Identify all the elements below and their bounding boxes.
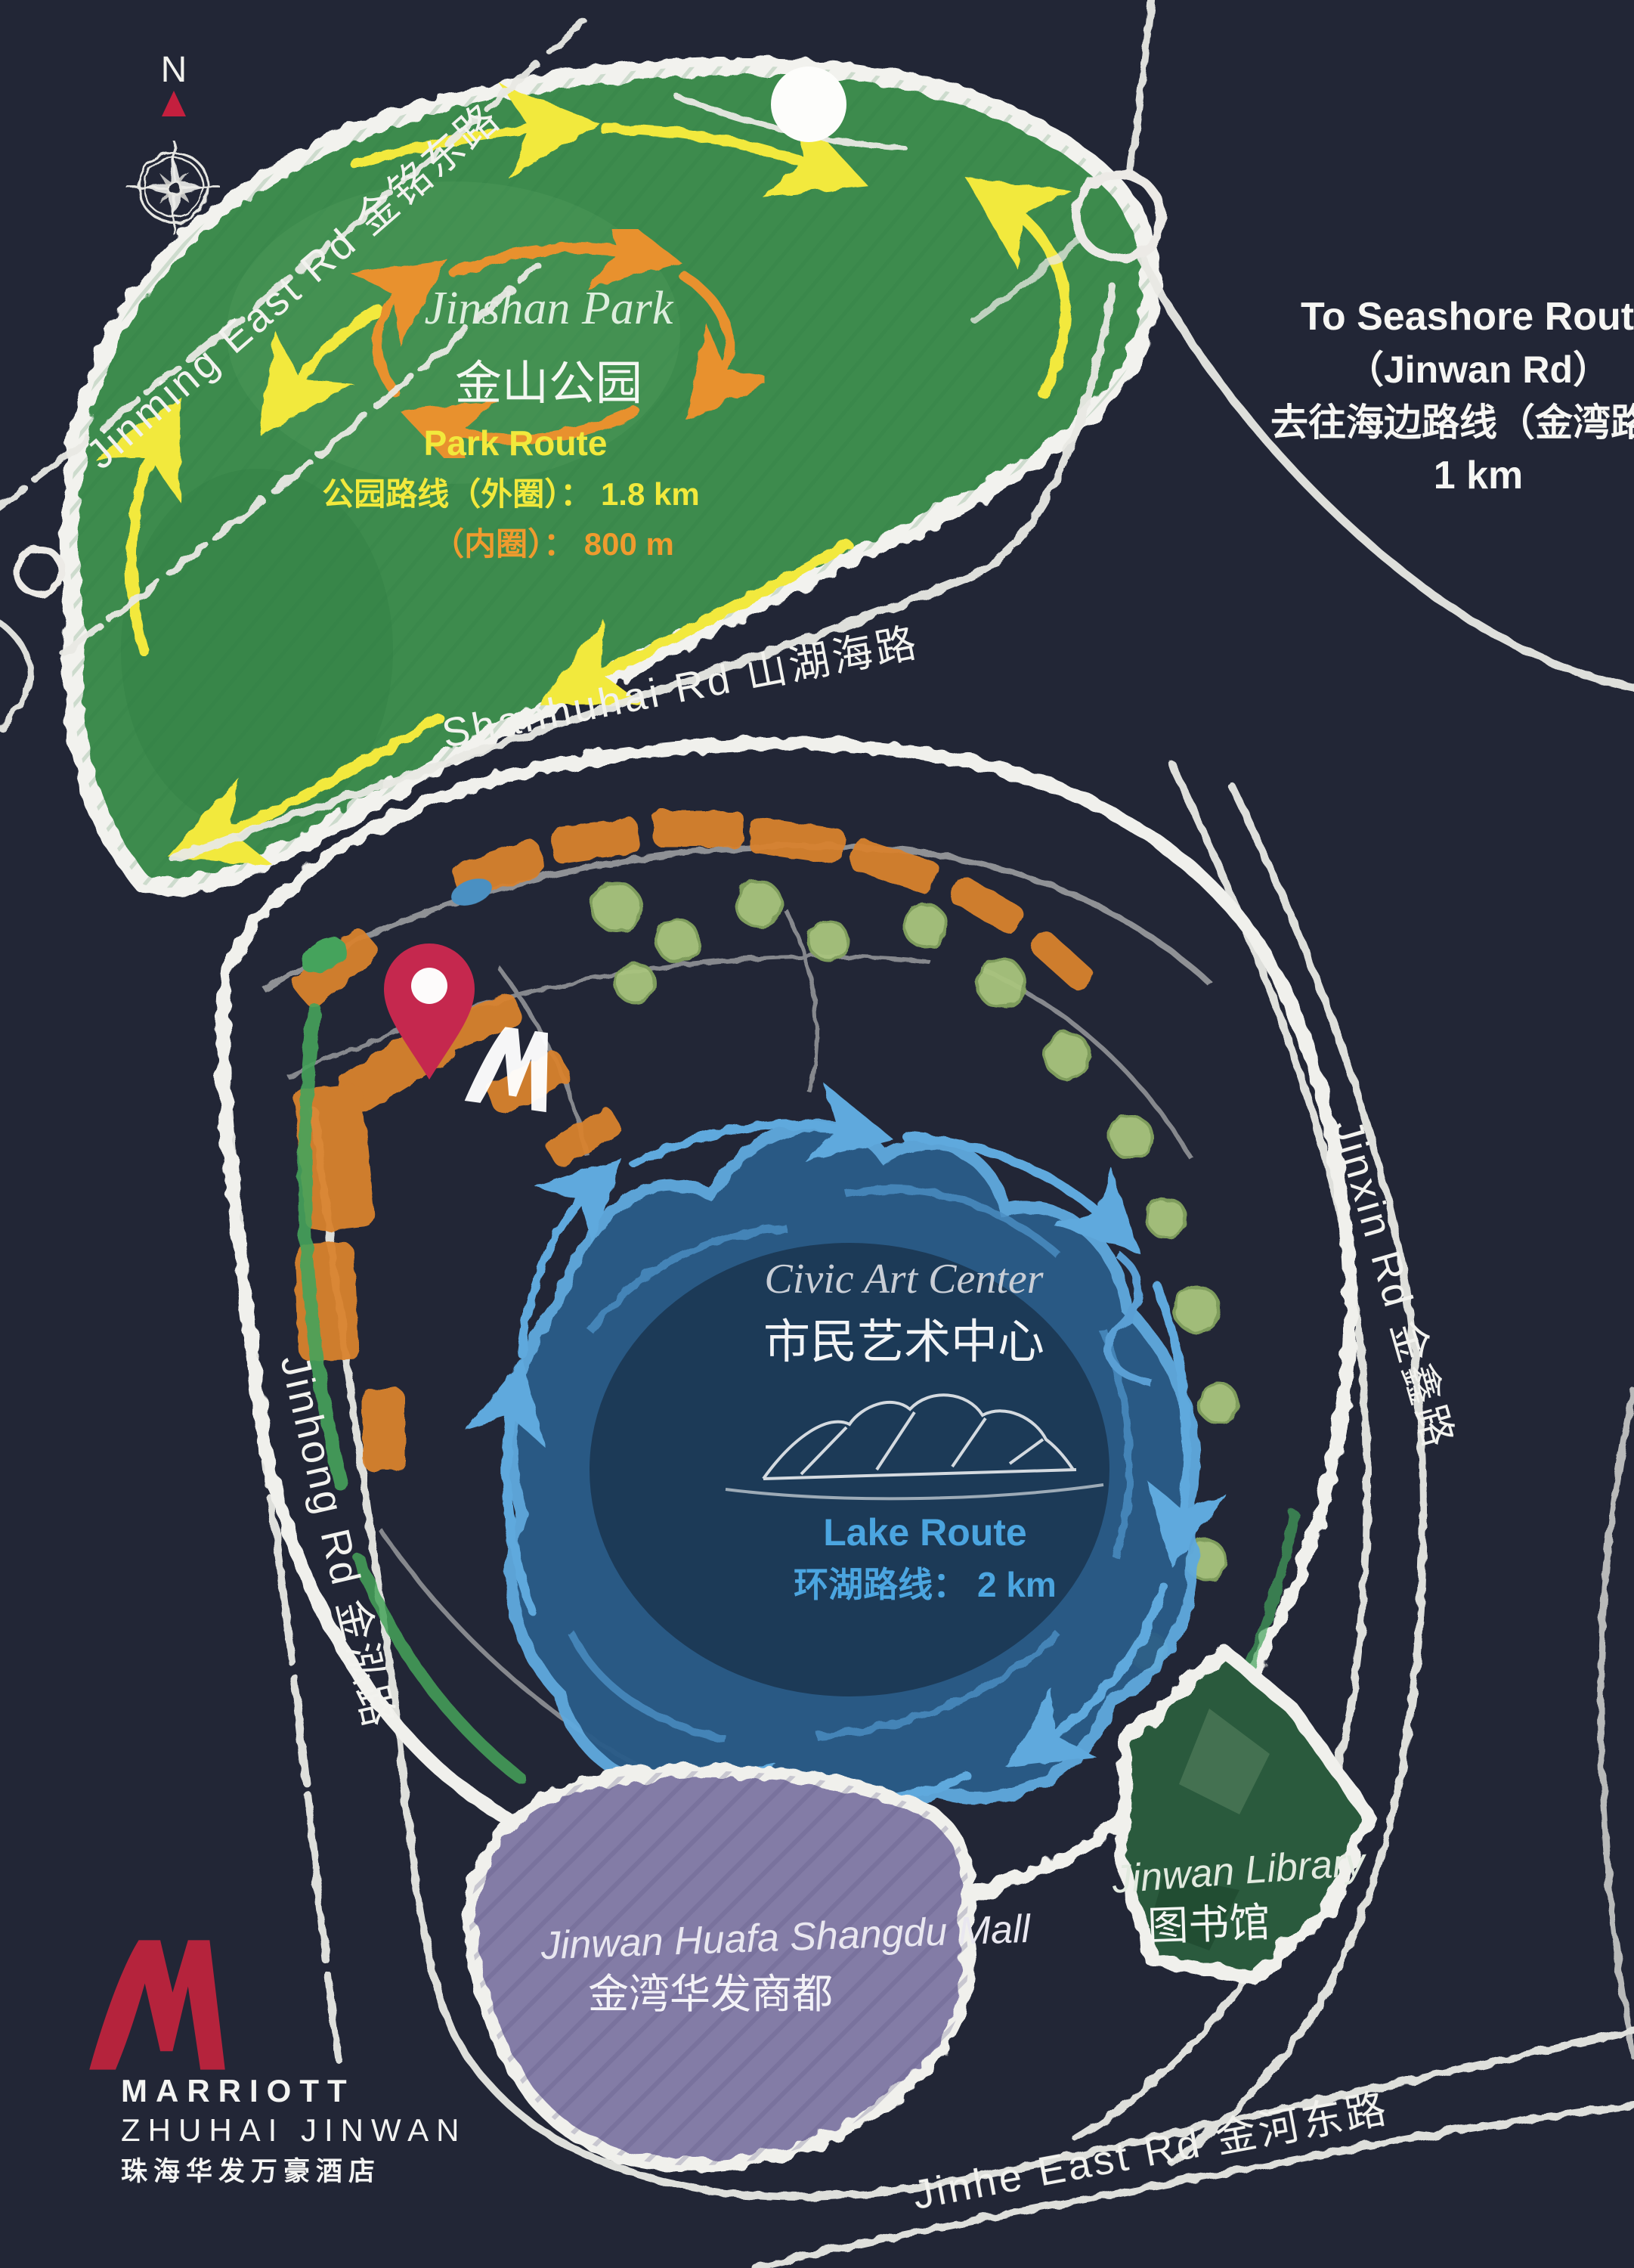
park-name-en: Jinshan Park [425, 283, 674, 334]
hotel-brand: MARRIOTT [121, 2073, 355, 2108]
park-route-inner: （内圈）： 800 m [432, 526, 674, 562]
seashore-line4: 1 km [1434, 454, 1524, 497]
hotel-location-name: ZHUHAI JINWAN [121, 2112, 466, 2148]
civic-name-zh: 市民艺术中心 [763, 1316, 1044, 1368]
moon-shape [771, 67, 846, 142]
park-route-title: Park Route [424, 423, 608, 463]
hotel-area-map-page: { "title": "Marriott Zhuhai Jinwan hand-… [0, 0, 1634, 2268]
seashore-line3: 去往海边路线（金湾路） [1270, 401, 1634, 444]
seashore-line2: （Jinwan Rd） [1346, 349, 1611, 391]
park-route-outer: 公园路线（外圈）： 1.8 km [322, 476, 699, 512]
hotel-name-zh: 珠海华发万豪酒店 [121, 2157, 381, 2186]
civic-name-en: Civic Art Center [764, 1256, 1043, 1303]
park-name-zh: 金山公园 [455, 358, 642, 410]
library-name-zh: 图书馆 [1147, 1900, 1270, 1950]
lake-route-title: Lake Route [823, 1511, 1027, 1554]
mall-name-zh: 金湾华发商都 [588, 1972, 833, 2017]
map-canvas: Jinshan Park 金山公园 Park Route 公园路线（外圈）： 1… [0, 0, 1634, 2268]
seashore-line1: To Seashore Route [1301, 295, 1634, 339]
lake-route-info: 环湖路线： 2 km [794, 1565, 1057, 1604]
compass-north-label: N [161, 50, 187, 90]
